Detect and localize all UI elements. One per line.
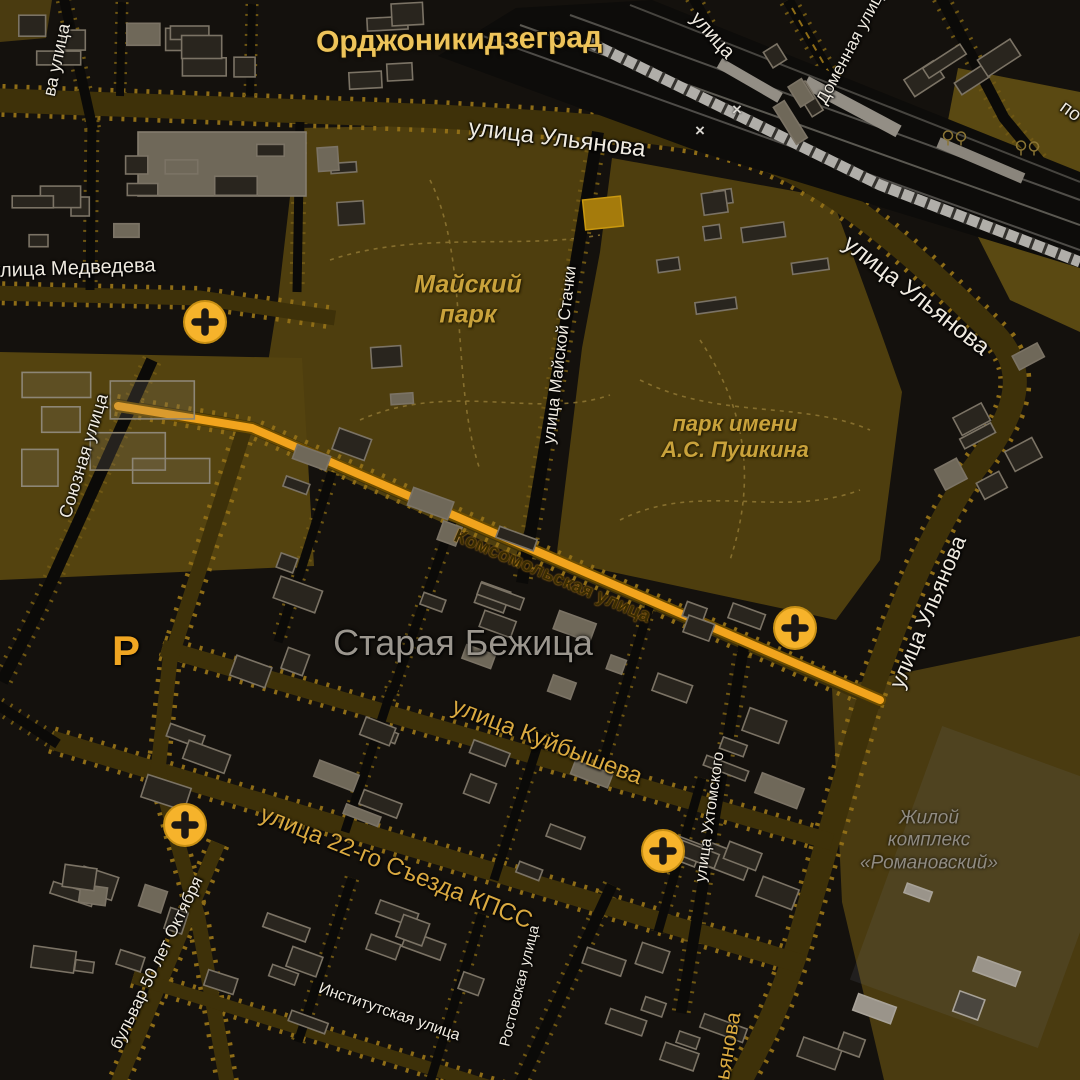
medical-cross-marker[interactable] [772, 605, 818, 651]
parking-marker[interactable]: P [112, 627, 140, 675]
tree-icon [1013, 139, 1043, 162]
rail-crossing-icon: × [732, 100, 742, 120]
tree-icon [940, 129, 970, 152]
rail-crossing-icon: × [695, 121, 705, 141]
medical-cross-marker[interactable] [640, 828, 686, 874]
map-canvas[interactable]: Орджоникидзеградулица Ульяноваулица Улья… [0, 0, 1080, 1080]
map-base-layer [0, 0, 1080, 1080]
medical-cross-marker[interactable] [162, 802, 208, 848]
medical-cross-marker[interactable] [182, 299, 228, 345]
